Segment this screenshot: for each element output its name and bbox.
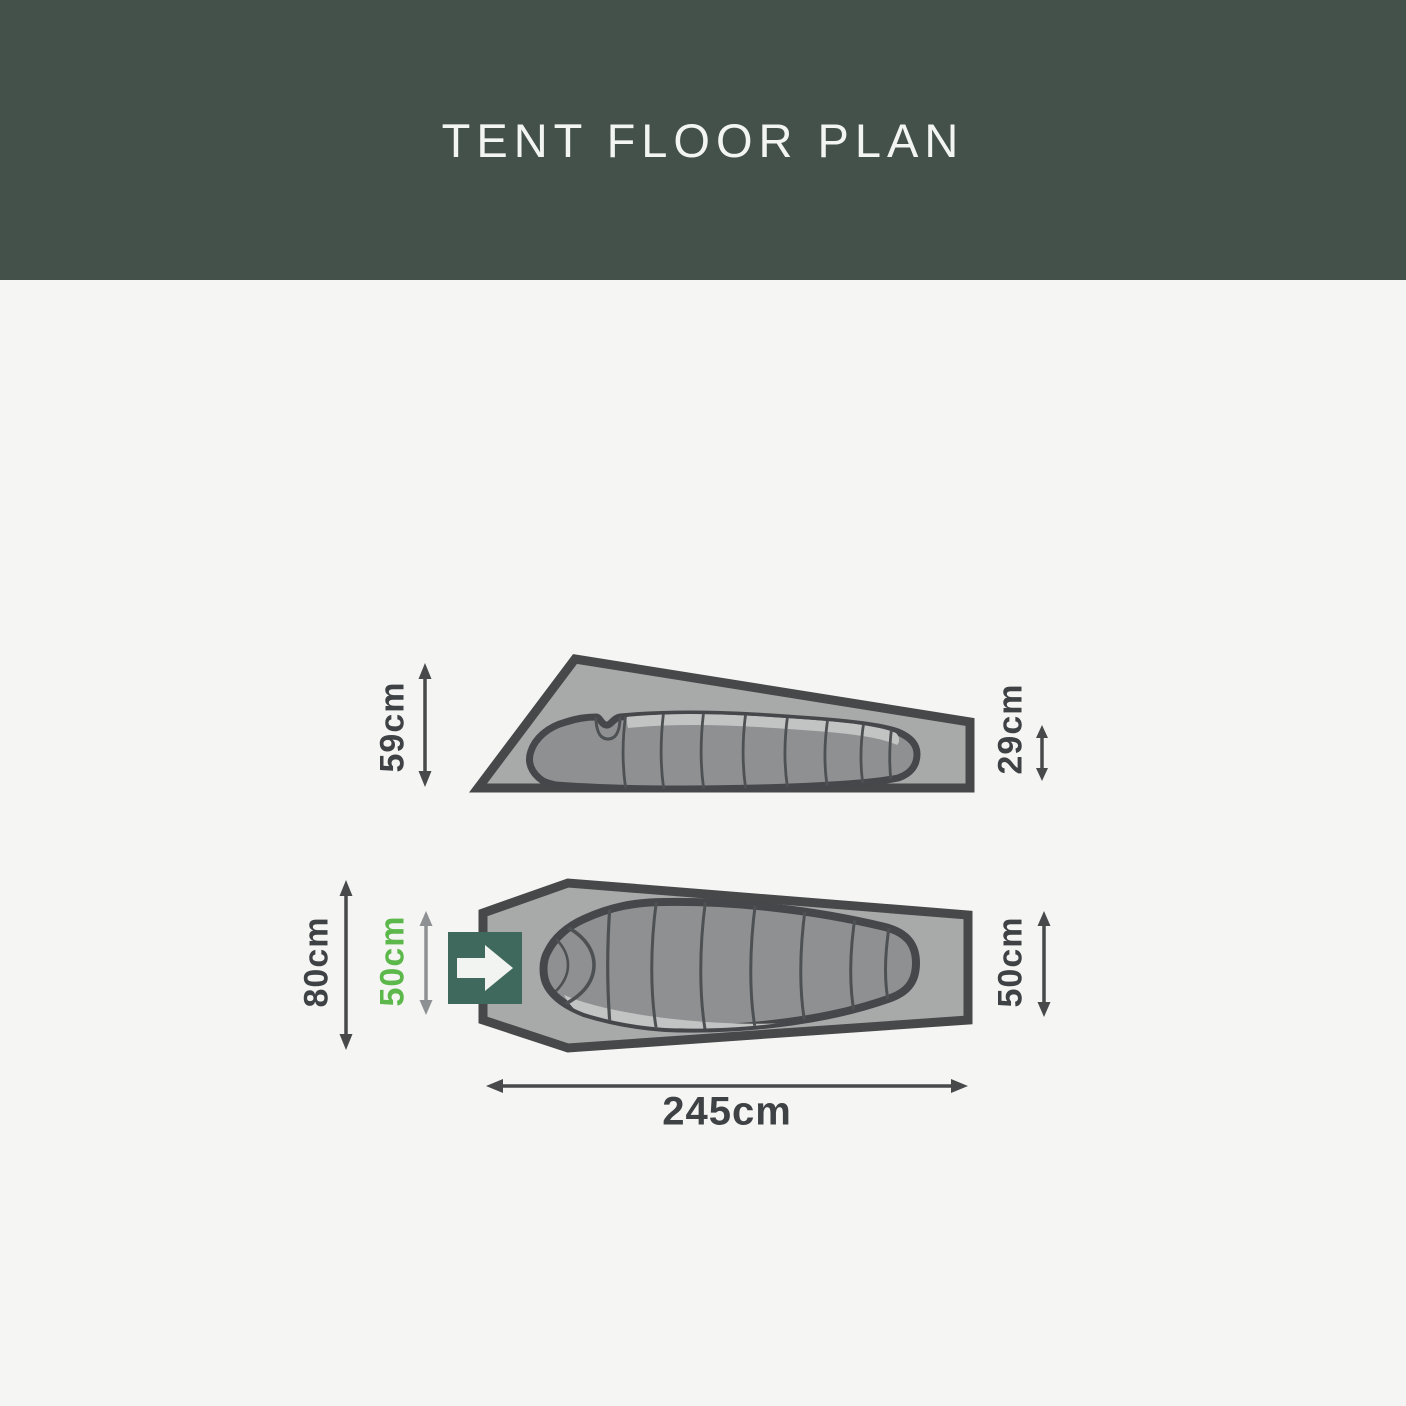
- tent-floor-plan-canvas: TENT FLOOR PLAN 59cm: [0, 0, 1406, 1406]
- door-width-arrow-icon: [414, 911, 438, 1015]
- right-arrow-icon: [455, 943, 515, 993]
- header-band: TENT FLOOR PLAN: [0, 0, 1406, 280]
- top-width-label: 80cm: [298, 917, 337, 1008]
- door-width-label: 50cm: [374, 916, 413, 1007]
- side-rear-height-arrow-icon: [1030, 725, 1054, 781]
- side-rear-height-label: 29cm: [992, 684, 1031, 775]
- top-width-arrow-icon: [334, 880, 358, 1050]
- side-height-label: 59cm: [374, 682, 413, 773]
- length-label: 245cm: [662, 1090, 792, 1135]
- foot-width-label: 50cm: [992, 917, 1031, 1008]
- tent-top-view-drawing: [460, 865, 990, 1065]
- tent-side-view-drawing: [430, 645, 990, 805]
- page-title: TENT FLOOR PLAN: [442, 113, 965, 168]
- foot-width-arrow-icon: [1032, 911, 1056, 1017]
- door-marker: [448, 932, 522, 1004]
